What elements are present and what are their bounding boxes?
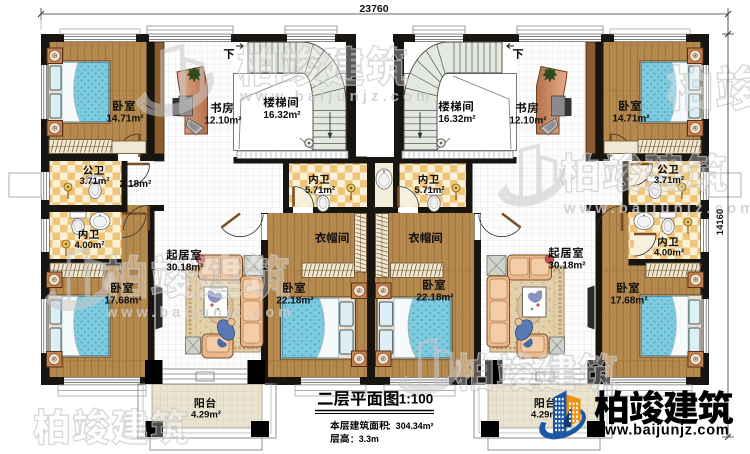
svg-text:22.18m²: 22.18m² [416,293,454,304]
svg-text:4.29m²: 4.29m² [191,410,221,421]
svg-text:14.71m²: 14.71m² [106,114,144,125]
svg-text:16.32m²: 16.32m² [438,114,476,125]
svg-text:17.68m²: 17.68m² [104,296,142,307]
svg-text:2.18m²: 2.18m² [120,179,152,190]
svg-text:：304.34m²: ：304.34m² [387,421,434,431]
svg-text:4.00m²: 4.00m² [74,240,104,251]
svg-text:14160: 14160 [715,209,726,235]
svg-text:www.baijunjz.com: www.baijunjz.com [239,88,433,105]
svg-text:www.baijunjz.com: www.baijunjz.com [105,305,295,321]
svg-text:：3.3m: ：3.3m [350,434,379,444]
svg-text:3.71m²: 3.71m² [654,175,684,186]
svg-text:23760: 23760 [359,3,388,15]
svg-text:14.71m²: 14.71m² [612,114,650,125]
svg-text:12.10m²: 12.10m² [204,116,242,127]
svg-text:1:100: 1:100 [399,392,434,407]
svg-text:16.32m²: 16.32m² [263,110,301,121]
svg-text:5.71m²: 5.71m² [305,185,335,196]
svg-text:5.71m²: 5.71m² [414,185,444,196]
svg-text:3.71m²: 3.71m² [79,176,109,187]
svg-text:22.18m²: 22.18m² [276,296,314,307]
svg-text:4.00m²: 4.00m² [654,248,684,259]
svg-text:30.18m²: 30.18m² [166,263,204,274]
svg-text:17.68m²: 17.68m² [610,296,648,307]
svg-text:www.baijunjz.com: www.baijunjz.com [592,423,729,439]
svg-text:12.10m²: 12.10m² [509,116,547,127]
svg-text:30.18m²: 30.18m² [548,261,586,272]
